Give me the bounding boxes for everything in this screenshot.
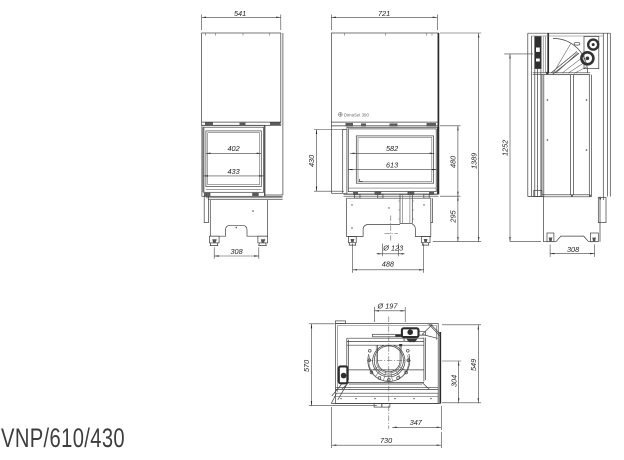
svg-text:295: 295 (449, 209, 458, 223)
svg-text:304: 304 (449, 375, 458, 387)
svg-text:VNP/610/430: VNP/610/430 (1, 423, 125, 453)
svg-text:721: 721 (378, 9, 390, 18)
svg-text:Ø 197: Ø 197 (377, 301, 399, 310)
svg-text:430: 430 (307, 155, 316, 167)
svg-text:613: 613 (386, 161, 398, 170)
svg-text:DimaSet 390: DimaSet 390 (344, 113, 369, 118)
svg-text:549: 549 (469, 359, 478, 371)
svg-text:Ø 123: Ø 123 (382, 244, 403, 253)
svg-text:308: 308 (567, 245, 580, 254)
svg-text:1252: 1252 (501, 140, 510, 156)
svg-text:402: 402 (228, 144, 240, 153)
svg-text:582: 582 (386, 144, 398, 153)
svg-text:488: 488 (382, 260, 395, 269)
svg-text:433: 433 (228, 167, 240, 176)
svg-text:480: 480 (449, 156, 458, 168)
svg-text:308: 308 (231, 247, 244, 256)
svg-text:730: 730 (380, 436, 392, 445)
svg-text:570: 570 (302, 360, 311, 372)
svg-text:1389: 1389 (469, 153, 478, 169)
svg-text:541: 541 (234, 9, 246, 18)
svg-text:347: 347 (410, 418, 423, 427)
